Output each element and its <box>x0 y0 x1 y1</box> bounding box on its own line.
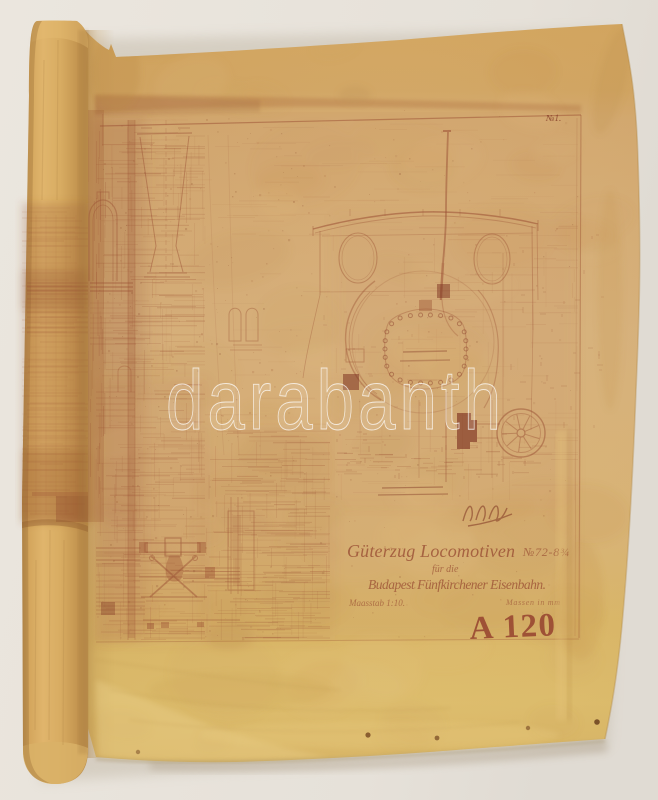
svg-text:Maasstab 1:10.: Maasstab 1:10. <box>348 598 405 608</box>
svg-text:№1.: №1. <box>545 113 561 123</box>
svg-text:Massen in mm: Massen in mm <box>505 598 560 607</box>
svg-text:Budapest Fünfkirchener Eisenba: Budapest Fünfkirchener Eisenbahn. <box>368 577 546 592</box>
svg-text:für die: für die <box>432 564 459 575</box>
svg-text:A 120: A 120 <box>469 607 558 647</box>
svg-text:Güterzug Locomotiven: Güterzug Locomotiven <box>347 541 515 561</box>
svg-text:darabanth: darabanth <box>166 353 505 447</box>
